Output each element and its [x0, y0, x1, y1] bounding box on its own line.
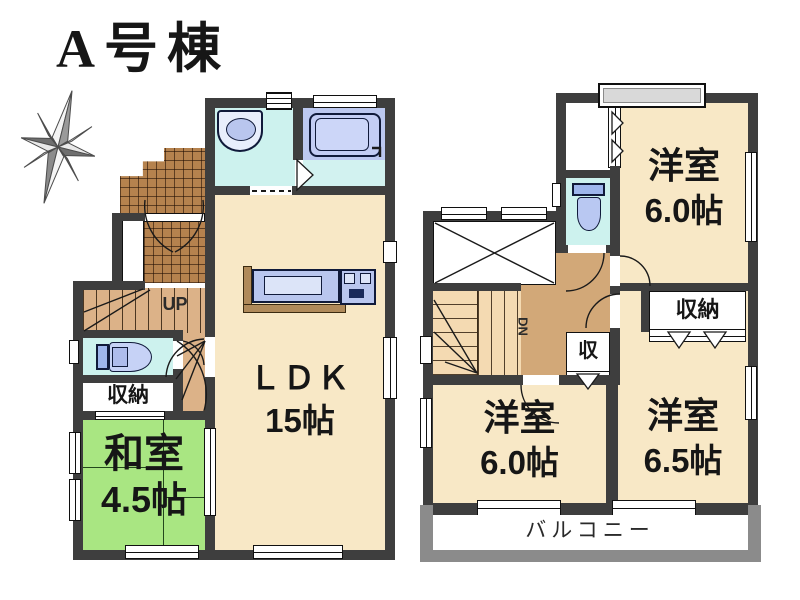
- closet-small-label: 収: [566, 341, 610, 361]
- wall: [73, 281, 145, 290]
- closet-main-doors: [649, 329, 746, 342]
- genkan-entry: [144, 222, 205, 283]
- bedroom-north-name: 洋室: [620, 148, 748, 184]
- window: [383, 337, 397, 399]
- window: [552, 183, 561, 207]
- window: [313, 95, 377, 108]
- washbasin-bowl: [226, 118, 256, 141]
- window: [125, 545, 199, 559]
- stairs-down-right: [477, 291, 521, 375]
- void-over-entry: [433, 221, 556, 285]
- wall: [556, 93, 566, 253]
- window: [477, 500, 561, 516]
- wall: [293, 98, 303, 160]
- washitsu-name: 和室: [83, 434, 205, 474]
- window: [69, 432, 81, 474]
- stairs-up-label: UP: [150, 295, 200, 313]
- kitchen-sink-basin: [264, 276, 322, 295]
- wall: [112, 213, 145, 221]
- wall: [641, 291, 649, 332]
- wall: [620, 283, 748, 291]
- balcony-label: バルコニー: [440, 520, 740, 541]
- shoe-cabinet: [122, 220, 144, 283]
- closet-main-label: 収納: [649, 299, 746, 321]
- window: [612, 500, 696, 516]
- floorplan-page: A号棟: [0, 0, 800, 600]
- toilet-tank-2f: [572, 183, 605, 196]
- wall: [385, 98, 395, 560]
- bedroom-north-door-gap: [610, 256, 620, 286]
- storage-label-1f: 収納: [83, 385, 173, 406]
- balcony-rail: [420, 550, 761, 562]
- stove-burner: [344, 273, 355, 284]
- window: [69, 479, 81, 521]
- stairs-down-label: DN: [517, 310, 530, 344]
- wall: [73, 330, 175, 338]
- bedroom-sw-name: 洋室: [433, 400, 606, 436]
- window: [441, 207, 487, 220]
- wall: [205, 288, 215, 560]
- wall: [205, 186, 395, 195]
- kitchen-counter-edge: [243, 304, 346, 313]
- window-glass-top: [603, 88, 701, 103]
- window: [266, 92, 292, 110]
- bedroom-se-name: 洋室: [618, 398, 748, 434]
- wall: [606, 385, 618, 503]
- fusuma-sliding-door: [204, 428, 216, 516]
- wall: [425, 283, 521, 291]
- wall: [566, 170, 610, 178]
- wall: [112, 213, 122, 283]
- stove-grill: [349, 289, 364, 298]
- entrance-porch: [120, 148, 208, 215]
- window: [501, 207, 547, 220]
- toilet-tank-1f: [96, 344, 109, 370]
- wall: [425, 375, 618, 385]
- toilet-door-gap-2f: [568, 245, 606, 253]
- bedroom-sw-size: 6.0帖: [433, 446, 606, 479]
- stairs-down-left: [433, 291, 477, 375]
- bedroom-north-size: 6.0帖: [620, 194, 748, 227]
- window: [69, 340, 79, 364]
- bathroom-floor: [303, 160, 385, 188]
- window: [383, 241, 397, 263]
- wall: [73, 375, 175, 383]
- bathtub-inner: [315, 118, 369, 151]
- stairhall-door-gap: [205, 337, 215, 377]
- window: [253, 545, 343, 559]
- ldk-size: 15帖: [215, 404, 385, 437]
- passage-2f: [566, 253, 610, 332]
- toilet-seat-1f: [112, 347, 128, 367]
- bedroom-se-size: 6.5帖: [618, 444, 748, 477]
- bedroom-se-door-gap: [610, 294, 620, 328]
- window: [420, 398, 432, 448]
- bedroom-sw-door-gap: [523, 375, 559, 385]
- washitsu-size: 4.5帖: [83, 482, 205, 518]
- stove-burner: [360, 273, 371, 284]
- wall: [610, 166, 620, 256]
- closet-north: [566, 103, 610, 170]
- storage-door-1f: [95, 411, 165, 420]
- ldk-name: ＬＤＫ: [215, 362, 385, 394]
- compass-icon: [6, 86, 110, 208]
- entry-threshold: [144, 213, 205, 222]
- page-title: A号棟: [56, 22, 230, 76]
- wall: [73, 550, 395, 560]
- toilet-bowl-2f: [577, 197, 601, 231]
- toilet-door-gap-1f: [173, 341, 183, 369]
- window: [420, 336, 432, 364]
- washroom-door-gap: [250, 186, 292, 195]
